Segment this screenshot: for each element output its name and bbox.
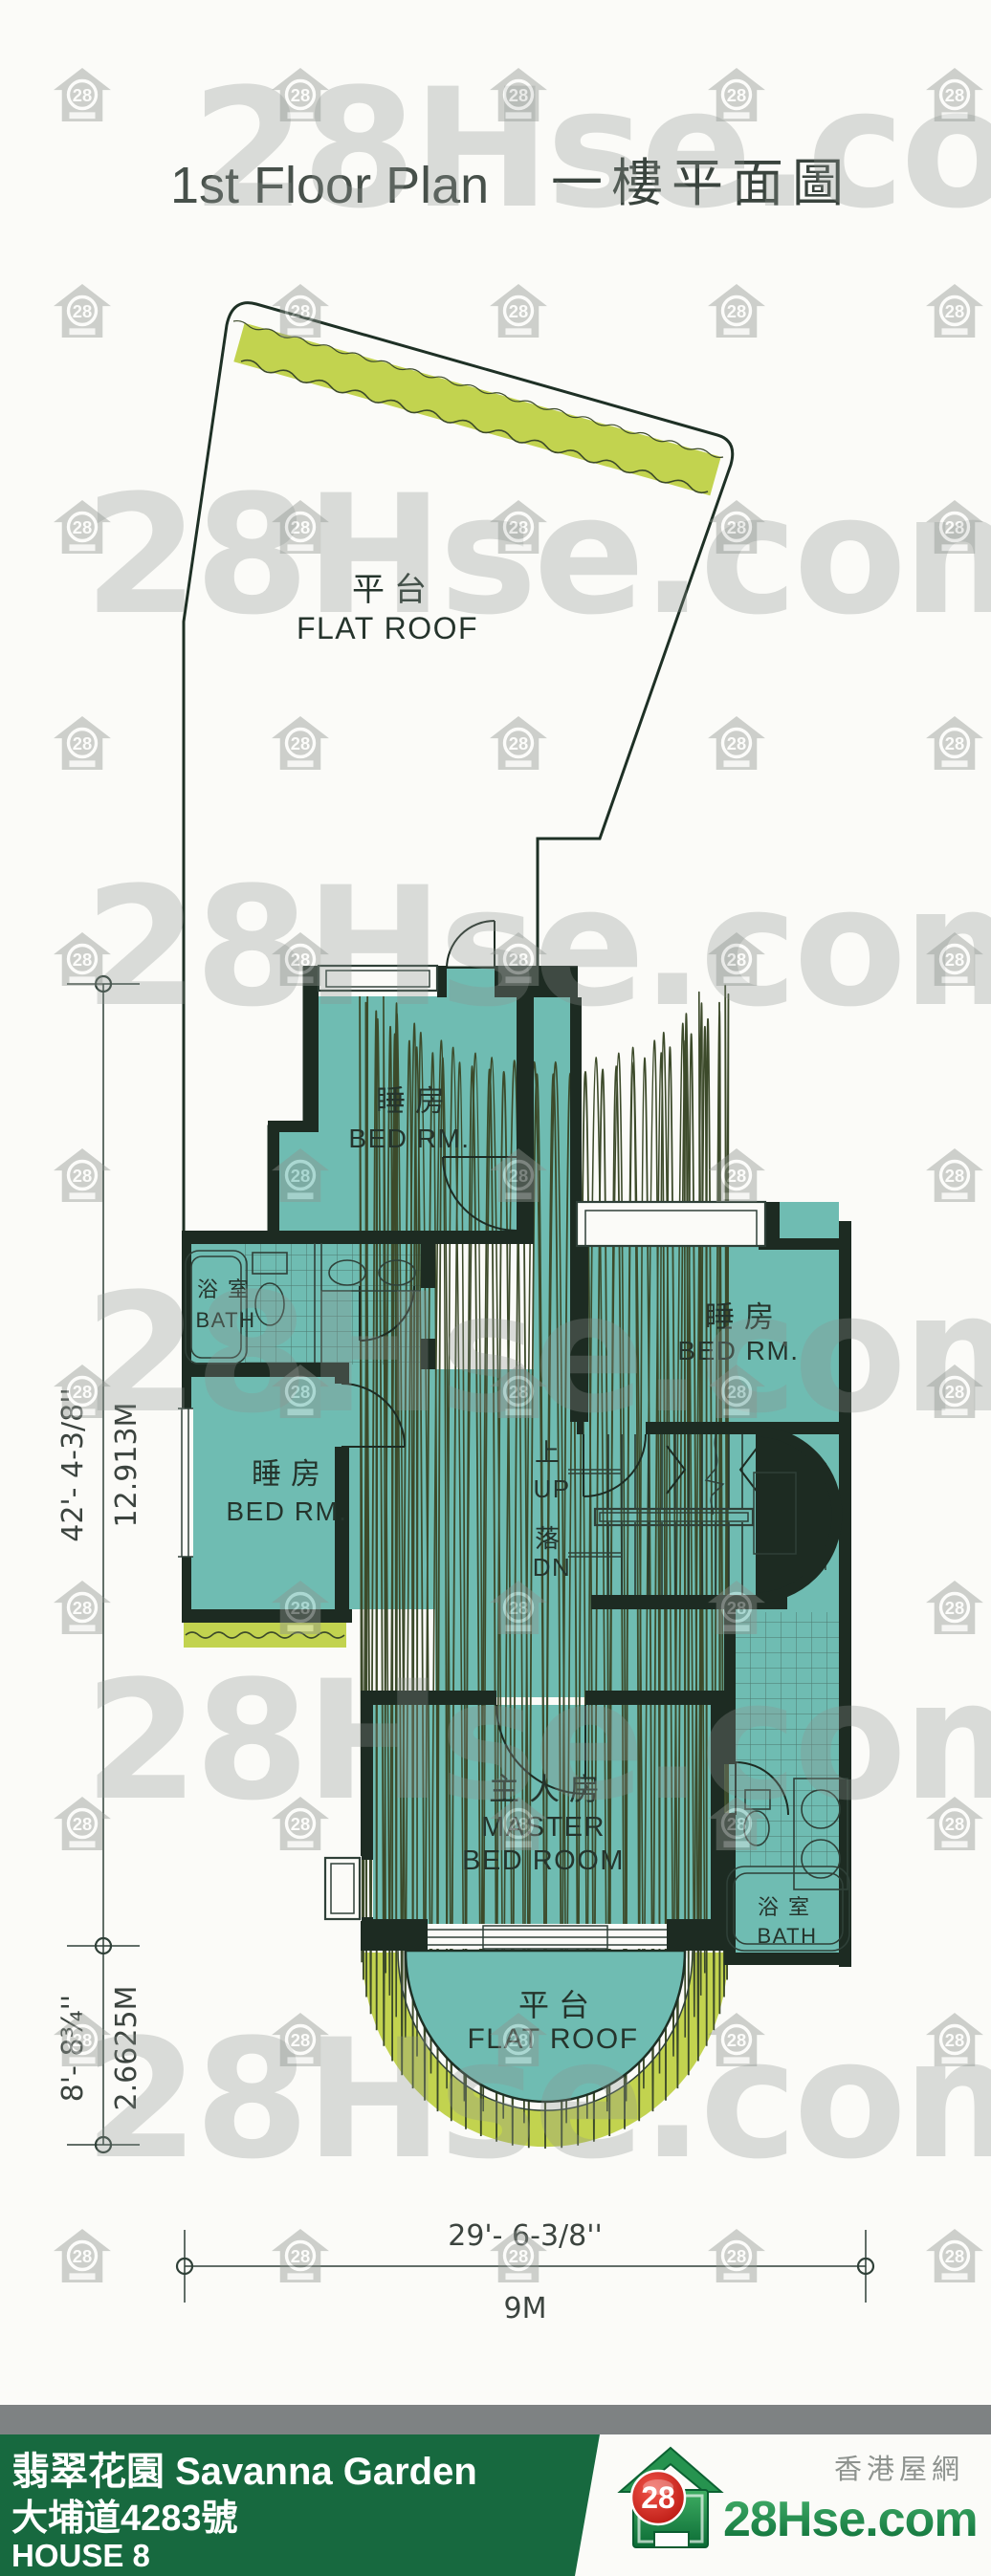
bedroom-left-label-zh: 睡房 — [252, 1457, 330, 1492]
footer-estate-name: 翡翠花園 Savanna Garden — [11, 2451, 477, 2493]
footer-house-number: HOUSE 8 — [11, 2538, 150, 2573]
watermark-text-row: 28Hse.com — [84, 1645, 991, 1837]
bedroom-left-label-en: BED RM. — [226, 1496, 347, 1526]
brand-wordmark: 28Hse.com — [723, 2492, 978, 2547]
watermark-text-row: 28Hse.com — [84, 459, 991, 651]
stairs-down-zh: 落 — [535, 1525, 569, 1554]
bath-right-label-en: BATH — [757, 1924, 817, 1948]
bedroom-top-label-zh: 睡房 — [376, 1084, 454, 1119]
stairs-down-en: DN — [533, 1553, 572, 1582]
footer-divider-band — [0, 2405, 991, 2434]
bedroom-top-label-en: BED RM. — [348, 1124, 470, 1153]
footer-address: 大埔道4283號 — [11, 2499, 238, 2539]
floor-plan-image: 28 平台 FLAT ROOF 平台 FLAT ROOF — [0, 0, 991, 2576]
bath-right-label-zh: 浴室 — [758, 1896, 819, 1920]
master-label-en2: BED ROOM — [462, 1845, 625, 1876]
floor-plan-page: 28 平台 FLAT ROOF 平台 FLAT ROOF — [0, 0, 991, 2576]
brand-tagline: 香港屋網 — [834, 2453, 964, 2485]
hedge-strip-left — [184, 1632, 346, 1638]
brand-badge-number: 28 — [641, 2480, 675, 2515]
stairs-up-en: UP — [533, 1474, 570, 1503]
dim-bottom-metric: 9M — [504, 2292, 547, 2325]
watermark-text-row: 28Hse.com — [84, 1257, 991, 1450]
